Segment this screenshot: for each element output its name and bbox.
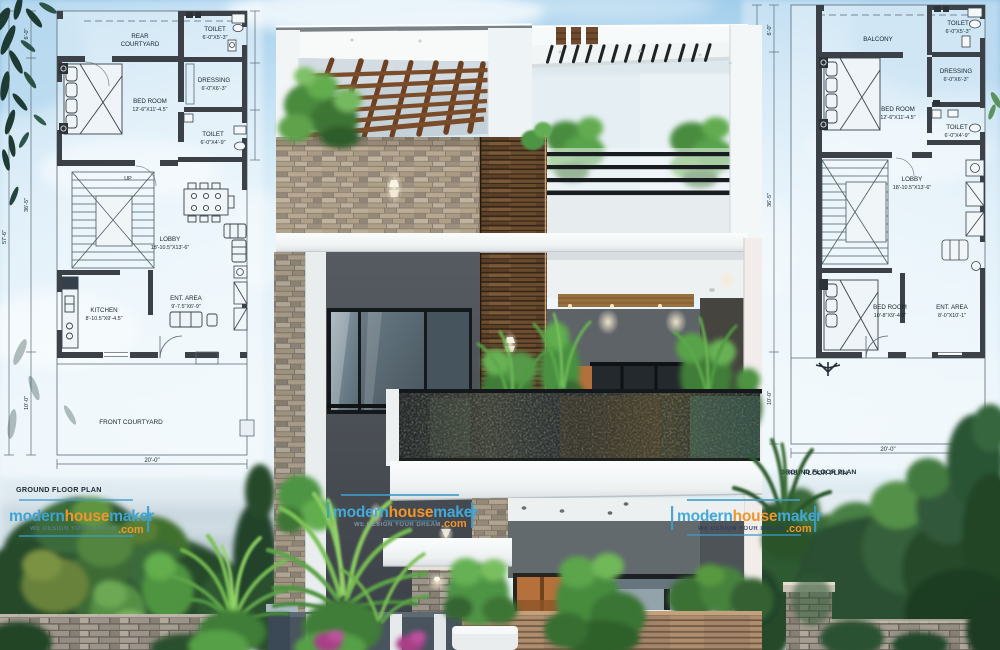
svg-text:BED ROOM: BED ROOM <box>873 304 907 311</box>
svg-text:6'-0": 6'-0" <box>24 28 30 39</box>
svg-text:8'-0"X10'-1": 8'-0"X10'-1" <box>938 313 966 319</box>
svg-text:WE DESIGN YOUR DREAM: WE DESIGN YOUR DREAM <box>30 526 117 532</box>
svg-text:KITCHEN: KITCHEN <box>90 307 117 314</box>
svg-text:BED ROOM: BED ROOM <box>881 106 915 113</box>
svg-text:6'-0"X4'-9": 6'-0"X4'-9" <box>944 133 969 139</box>
svg-text:6'-0"X4'-9": 6'-0"X4'-9" <box>200 140 225 146</box>
svg-text:6'-0"X6'-3": 6'-0"X6'-3" <box>943 77 968 83</box>
svg-text:6'-0": 6'-0" <box>767 24 773 35</box>
svg-text:DRESSING: DRESSING <box>198 77 231 84</box>
svg-text:BALCONY: BALCONY <box>863 36 893 43</box>
svg-text:6'-0"X5'-3": 6'-0"X5'-3" <box>945 29 970 35</box>
svg-text:10'-8"X9'-4.5": 10'-8"X9'-4.5" <box>874 313 907 319</box>
svg-text:ENT. AREA: ENT. AREA <box>936 304 969 311</box>
svg-text:6'-0"X6'-3": 6'-0"X6'-3" <box>201 86 226 92</box>
svg-text:10'-0": 10'-0" <box>24 396 30 410</box>
svg-text:TOILET: TOILET <box>204 26 226 33</box>
svg-text:TOILET: TOILET <box>947 20 969 27</box>
svg-text:GROUND FLOOR PLAN: GROUND FLOOR PLAN <box>16 485 102 494</box>
svg-text:COURTYARD: COURTYARD <box>121 41 160 48</box>
svg-text:LOBBY: LOBBY <box>160 236 181 243</box>
svg-text:.com: .com <box>441 518 467 530</box>
svg-text:20'-0": 20'-0" <box>880 447 895 453</box>
svg-text:8'-10.5"X9'-4.5": 8'-10.5"X9'-4.5" <box>85 316 122 322</box>
svg-text:UP: UP <box>124 176 132 182</box>
svg-text:36'-5": 36'-5" <box>767 193 773 207</box>
svg-text:FRONT COURTYARD: FRONT COURTYARD <box>99 419 163 426</box>
svg-text:36'-5": 36'-5" <box>24 198 30 212</box>
svg-text:WE DESIGN YOUR DREAM: WE DESIGN YOUR DREAM <box>354 522 441 528</box>
svg-text:DRESSING: DRESSING <box>940 68 973 75</box>
svg-text:TOILET: TOILET <box>946 124 968 131</box>
svg-text:ENT. AREA: ENT. AREA <box>170 295 203 302</box>
svg-text:LOBBY: LOBBY <box>902 176 923 183</box>
svg-text:WE DESIGN YOUR DREAM: WE DESIGN YOUR DREAM <box>698 526 785 532</box>
svg-text:REAR: REAR <box>131 33 149 40</box>
svg-text:6'-0"X5'-3": 6'-0"X5'-3" <box>202 35 227 41</box>
svg-text:12'-6"X11'-4.5": 12'-6"X11'-4.5" <box>880 115 915 121</box>
svg-text:57'-6": 57'-6" <box>2 230 8 244</box>
svg-text:TOILET: TOILET <box>202 131 224 138</box>
svg-text:FIRST FLOOR PLAN: FIRST FLOOR PLAN <box>782 470 848 477</box>
svg-text:12'-6"X11'-4.5": 12'-6"X11'-4.5" <box>132 107 167 113</box>
svg-text:.com: .com <box>118 524 144 536</box>
svg-text:20'-0": 20'-0" <box>144 458 159 464</box>
svg-text:18'-10.5"X13'-6": 18'-10.5"X13'-6" <box>893 185 932 191</box>
svg-text:.com: .com <box>786 523 812 535</box>
svg-text:BED ROOM: BED ROOM <box>133 98 167 105</box>
svg-text:modernhousemaker: modernhousemaker <box>9 508 154 525</box>
svg-text:10'-0": 10'-0" <box>767 391 773 405</box>
svg-text:9'-7.5"X6'-9": 9'-7.5"X6'-9" <box>171 304 201 310</box>
svg-text:18'-10.5"X13'-6": 18'-10.5"X13'-6" <box>151 245 190 251</box>
